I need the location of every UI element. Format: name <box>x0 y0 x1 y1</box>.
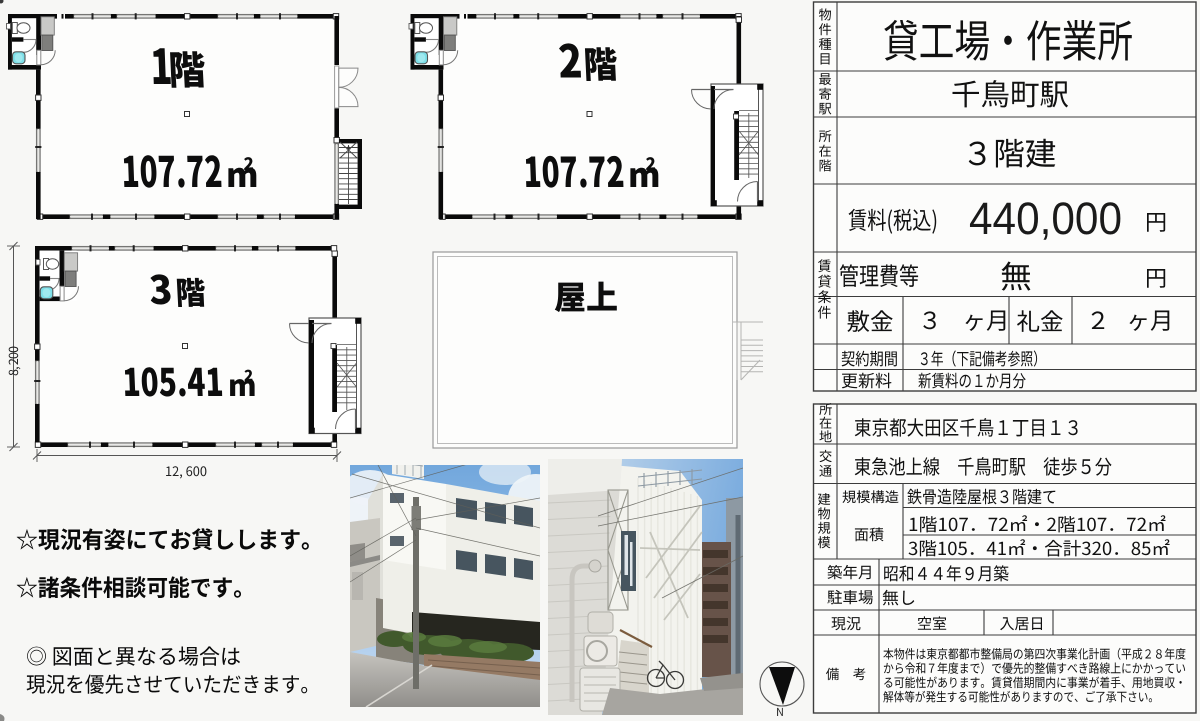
svg-text:440,000: 440,000 <box>969 193 1122 244</box>
